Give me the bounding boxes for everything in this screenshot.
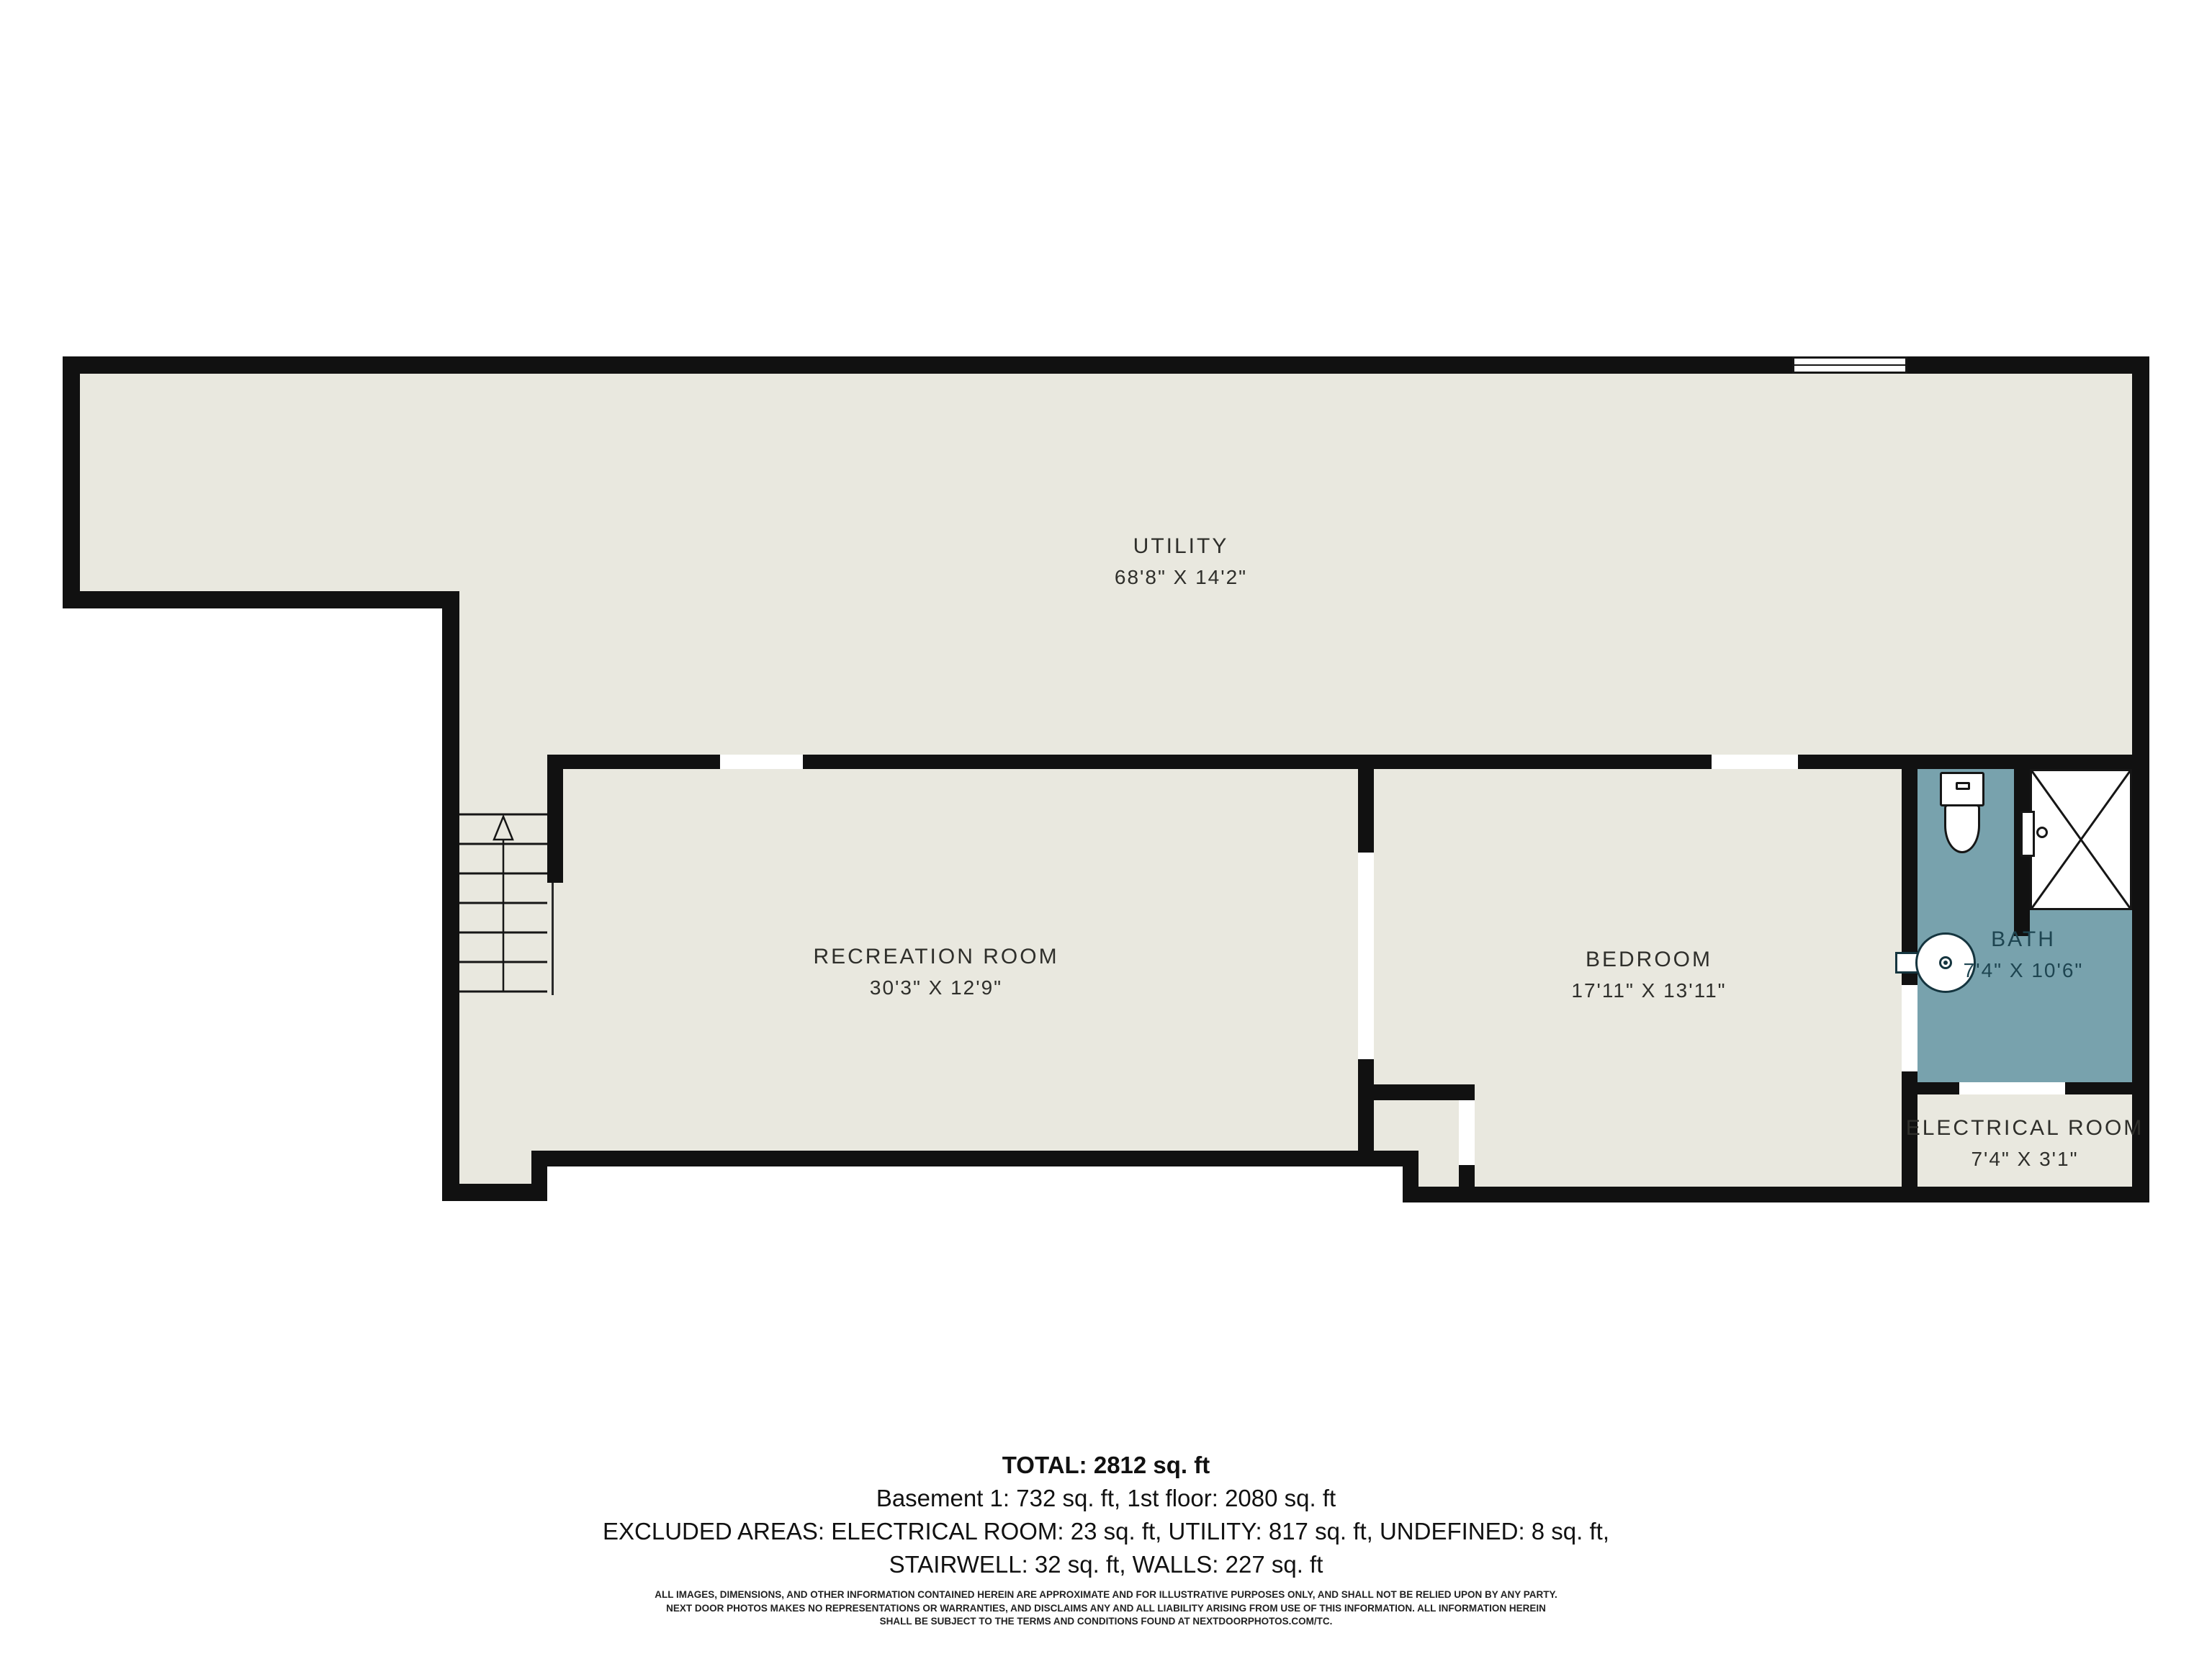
wall-bottom-lower xyxy=(1403,1187,2149,1202)
wall-alcove-top xyxy=(1358,1084,1475,1100)
sink-drain-dot xyxy=(1943,961,1948,965)
room-name: ELECTRICAL ROOM xyxy=(1906,1116,2144,1141)
shower-icon xyxy=(2030,769,2132,910)
disclaimer-line-1: ALL IMAGES, DIMENSIONS, AND OTHER INFORM… xyxy=(655,1588,1557,1602)
room-label-recreation: RECREATION ROOM 30'3" X 12'9" xyxy=(813,945,1058,999)
disclaimer-line-3: SHALL BE SUBJECT TO THE TERMS AND CONDIT… xyxy=(655,1615,1557,1629)
shower-knob xyxy=(2036,827,2048,838)
wall-left-upper xyxy=(63,356,80,608)
excluded-areas-line-1: EXCLUDED AREAS: ELECTRICAL ROOM: 23 sq. … xyxy=(603,1515,1609,1548)
room-dimensions: 68'8" X 14'2" xyxy=(1115,566,1247,589)
stairs-icon xyxy=(459,769,547,995)
shower-valve xyxy=(2020,811,2035,857)
recreation-room-floor-bump xyxy=(459,1151,531,1184)
utility-floor-upper xyxy=(80,374,2132,608)
bedroom-floor-lower xyxy=(1419,1151,1902,1187)
wall-right xyxy=(2132,356,2149,1202)
wall-stairwell-right xyxy=(547,755,563,883)
door-opening-bath xyxy=(1902,985,1917,1071)
floor-areas-line: Basement 1: 732 sq. ft, 1st floor: 2080 … xyxy=(603,1482,1609,1515)
room-dimensions: 7'4" X 10'6" xyxy=(1964,959,2084,982)
door-opening-bedroom xyxy=(1712,755,1798,769)
utility-floor-lower xyxy=(459,608,2132,755)
room-label-utility: UTILITY 68'8" X 14'2" xyxy=(1115,534,1247,589)
door-opening-recreation xyxy=(720,755,803,769)
disclaimer-line-2: NEXT DOOR PHOTOS MAKES NO REPRESENTATION… xyxy=(655,1602,1557,1616)
room-label-bath: BATH 7'4" X 10'6" xyxy=(1964,927,2084,982)
stair-rail xyxy=(552,883,554,995)
room-name: BATH xyxy=(1964,927,2084,952)
room-name: BEDROOM xyxy=(1571,948,1726,972)
room-name: RECREATION ROOM xyxy=(813,945,1058,969)
room-label-electrical: ELECTRICAL ROOM 7'4" X 3'1" xyxy=(1906,1116,2144,1171)
wall-notch-bottom xyxy=(63,591,459,608)
room-label-bedroom: BEDROOM 17'11" X 13'11" xyxy=(1571,948,1726,1002)
wall-left-lower xyxy=(442,591,459,1201)
stair-corridor-floor xyxy=(459,755,547,769)
floor-plan-page: UTILITY 68'8" X 14'2" RECREATION ROOM 30… xyxy=(0,0,2212,1659)
room-name: UTILITY xyxy=(1115,534,1247,559)
toilet-flush-button xyxy=(1956,782,1970,790)
total-area-line: TOTAL: 2812 sq. ft xyxy=(603,1449,1609,1482)
window-pane-line xyxy=(1794,364,1905,366)
disclaimer: ALL IMAGES, DIMENSIONS, AND OTHER INFORM… xyxy=(655,1588,1557,1629)
room-dimensions: 30'3" X 12'9" xyxy=(813,976,1058,999)
door-opening-alcove xyxy=(1459,1100,1475,1165)
room-dimensions: 17'11" X 13'11" xyxy=(1571,979,1726,1002)
opening-recreation-bedroom xyxy=(1358,853,1374,1059)
excluded-areas-line-2: STAIRWELL: 32 sq. ft, WALLS: 227 sq. ft xyxy=(603,1548,1609,1581)
wall-recreation-bottom xyxy=(531,1151,1419,1166)
room-dimensions: 7'4" X 3'1" xyxy=(1906,1148,2144,1171)
area-summary: TOTAL: 2812 sq. ft Basement 1: 732 sq. f… xyxy=(603,1449,1609,1581)
door-opening-electrical xyxy=(1959,1082,2065,1094)
window xyxy=(1792,356,1907,374)
